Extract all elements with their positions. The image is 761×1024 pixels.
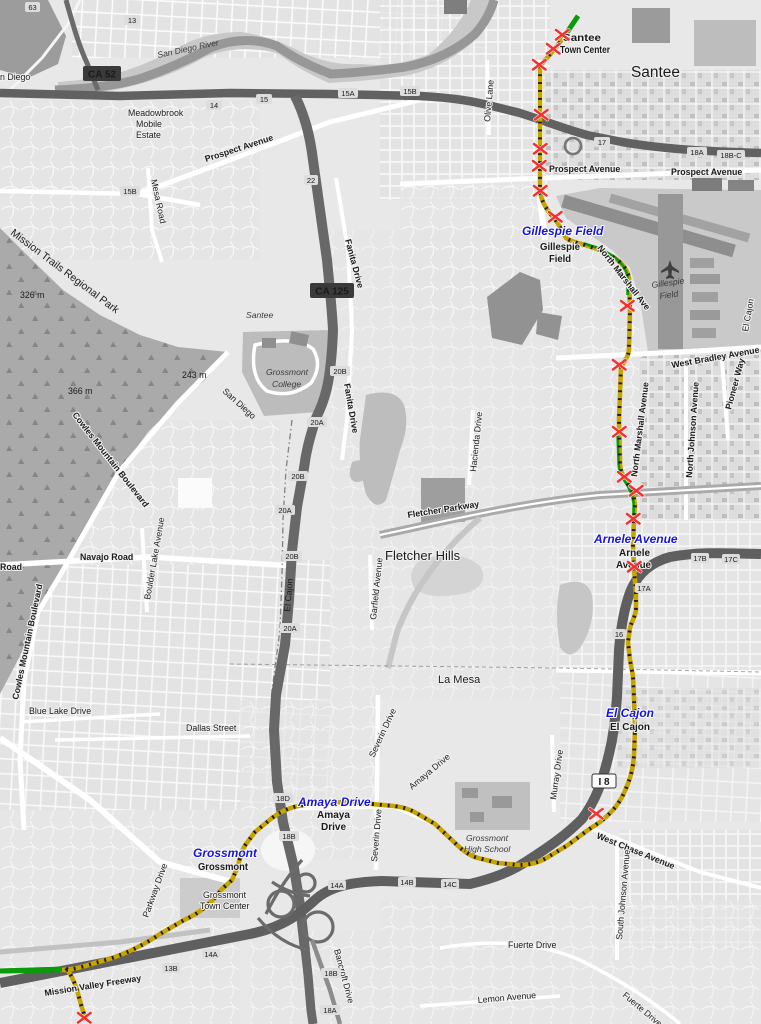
svg-text:366 m: 366 m	[68, 386, 92, 396]
svg-text:Grossmont: Grossmont	[466, 833, 509, 843]
svg-text:17C: 17C	[724, 555, 738, 564]
svg-text:14A: 14A	[330, 881, 343, 890]
svg-text:18B-C: 18B-C	[720, 151, 742, 160]
svg-text:20A: 20A	[283, 624, 296, 633]
svg-text:18A: 18A	[323, 1006, 336, 1015]
svg-text:15B: 15B	[123, 187, 136, 196]
svg-text:Santee: Santee	[631, 64, 680, 81]
svg-text:20B: 20B	[333, 367, 346, 376]
svg-text:n Diego: n Diego	[0, 72, 30, 82]
svg-text:22: 22	[307, 176, 315, 185]
svg-text:14B: 14B	[400, 878, 413, 887]
svg-text:Estate: Estate	[136, 130, 161, 140]
svg-text:Grossmont: Grossmont	[198, 862, 249, 873]
svg-text:14A: 14A	[204, 950, 217, 959]
svg-text:63: 63	[28, 3, 36, 12]
svg-text:18A: 18A	[690, 148, 703, 157]
svg-text:243 m: 243 m	[182, 370, 206, 380]
svg-text:15: 15	[260, 95, 268, 104]
svg-text:College: College	[272, 379, 301, 389]
svg-text:17A: 17A	[637, 584, 650, 593]
svg-text:Arnele Avenue: Arnele Avenue	[593, 532, 678, 546]
svg-text:I 8: I 8	[598, 777, 610, 788]
svg-text:14: 14	[210, 101, 218, 110]
svg-text:Road: Road	[0, 562, 22, 572]
svg-text:13: 13	[128, 16, 136, 25]
svg-text:20A: 20A	[310, 418, 323, 427]
svg-text:Town Center: Town Center	[200, 901, 249, 911]
svg-text:Grossmont: Grossmont	[193, 846, 258, 860]
svg-text:15B: 15B	[403, 87, 416, 96]
svg-text:Meadowbrook: Meadowbrook	[128, 108, 184, 118]
svg-text:17: 17	[598, 138, 606, 147]
svg-text:Dallas Street: Dallas Street	[186, 723, 237, 733]
svg-text:Prospect Avenue: Prospect Avenue	[549, 164, 620, 174]
svg-text:Gillespie Field: Gillespie Field	[522, 224, 604, 238]
svg-text:Fuerte Drive: Fuerte Drive	[508, 940, 557, 950]
svg-text:Fletcher Hills: Fletcher Hills	[385, 548, 461, 563]
svg-text:El Cajon: El Cajon	[610, 722, 650, 733]
svg-text:326 m: 326 m	[20, 290, 44, 300]
svg-text:CA 125: CA 125	[315, 287, 349, 298]
svg-text:Grossmont: Grossmont	[203, 890, 247, 900]
svg-text:18D: 18D	[276, 794, 290, 803]
svg-text:Drive: Drive	[321, 822, 346, 833]
svg-text:High School: High School	[464, 844, 511, 854]
svg-text:13B: 13B	[164, 964, 177, 973]
svg-text:El Cajon: El Cajon	[606, 706, 654, 720]
svg-text:20A: 20A	[278, 506, 291, 515]
svg-text:CA 52: CA 52	[88, 70, 116, 81]
svg-text:20B: 20B	[291, 472, 304, 481]
svg-text:Navajo Road: Navajo Road	[80, 552, 133, 562]
svg-text:14C: 14C	[443, 880, 457, 889]
svg-text:Blue Lake Drive: Blue Lake Drive	[29, 706, 91, 716]
svg-text:Field: Field	[549, 254, 571, 265]
svg-text:17B: 17B	[693, 554, 706, 563]
svg-text:Arnele: Arnele	[619, 548, 650, 559]
svg-text:Mobile: Mobile	[136, 119, 162, 129]
svg-text:Amaya: Amaya	[317, 810, 350, 821]
svg-text:Amaya Drive: Amaya Drive	[297, 795, 371, 809]
svg-text:16: 16	[615, 630, 623, 639]
svg-text:Prospect Avenue: Prospect Avenue	[671, 167, 742, 177]
svg-text:15A: 15A	[341, 89, 354, 98]
svg-text:La Mesa: La Mesa	[438, 674, 481, 686]
svg-text:Santee: Santee	[246, 310, 273, 320]
svg-text:18B: 18B	[282, 832, 295, 841]
svg-text:Grossmont: Grossmont	[266, 367, 309, 377]
svg-text:Gillespie: Gillespie	[540, 242, 580, 253]
svg-text:Town Center: Town Center	[560, 45, 610, 56]
svg-text:18B: 18B	[324, 969, 337, 978]
svg-text:20B: 20B	[285, 552, 298, 561]
